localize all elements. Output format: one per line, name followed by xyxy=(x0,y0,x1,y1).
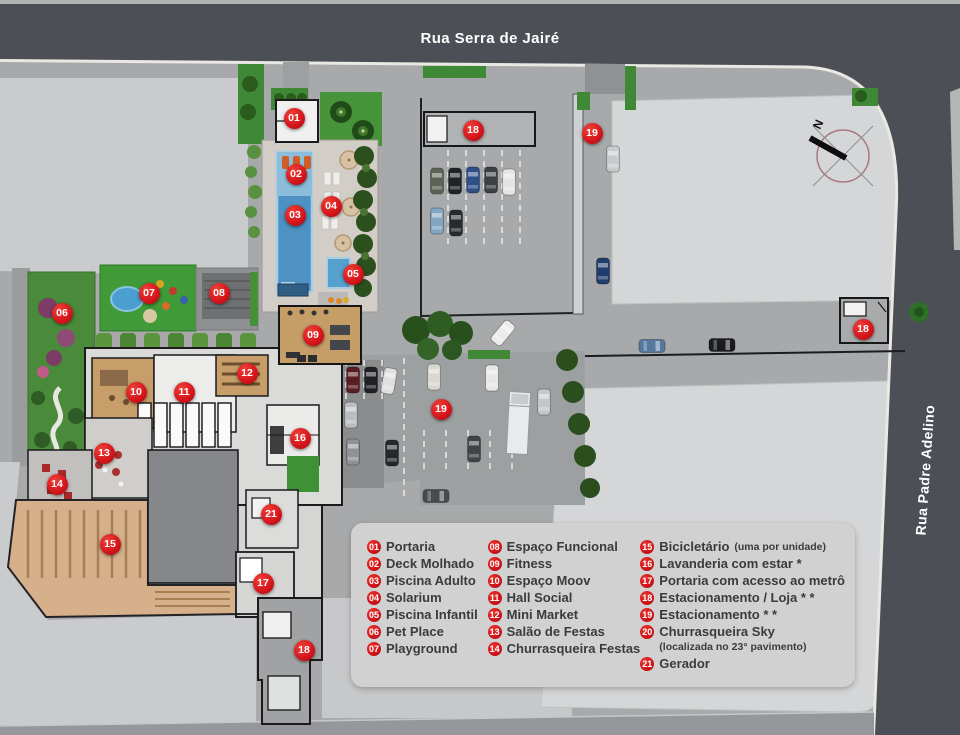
map-marker-09: 09 xyxy=(303,325,324,346)
sidewalk-bush xyxy=(909,302,929,322)
map-marker-21: 21 xyxy=(261,504,282,525)
car xyxy=(365,367,378,393)
map-marker-10: 10 xyxy=(126,382,147,403)
map-marker-07: 07 xyxy=(139,283,160,304)
legend-label-13: Salão de Festas xyxy=(507,624,605,639)
map-marker-19: 19 xyxy=(431,399,452,420)
map-marker-15: 15 xyxy=(100,534,121,555)
legend-label-06: Pet Place xyxy=(386,624,444,639)
legend-label-02: Deck Molhado xyxy=(386,556,474,571)
legend-item-04: 04Solarium xyxy=(367,589,488,606)
legend-label-08: Espaço Funcional xyxy=(507,539,618,554)
map-marker-03: 03 xyxy=(285,205,306,226)
car xyxy=(538,389,551,415)
legend-label-20: Churrasqueira Sky xyxy=(659,624,775,639)
legend-item-17: 17Portaria com acesso ao metrô xyxy=(640,572,845,589)
legend-item-13: 13Salão de Festas xyxy=(488,623,641,640)
legend-badge-14: 14 xyxy=(488,642,502,656)
legend-item-03: 03Piscina Adulto xyxy=(367,572,488,589)
car xyxy=(709,339,735,352)
car xyxy=(347,367,360,393)
legend-label-18: Estacionamento / Loja * * xyxy=(659,590,814,605)
car xyxy=(345,402,358,428)
map-marker-17: 17 xyxy=(253,573,274,594)
legend-label-07: Playground xyxy=(386,641,458,656)
legend-label-03: Piscina Adulto xyxy=(386,573,476,588)
map-marker-02: 02 xyxy=(286,164,307,185)
legend-badge-04: 04 xyxy=(367,591,381,605)
legend-badge-11: 11 xyxy=(488,591,502,605)
map-marker-14: 14 xyxy=(47,474,68,495)
legend-item-14: 14Churrasqueira Festas xyxy=(488,640,641,657)
legend-label-05: Piscina Infantil xyxy=(386,607,478,622)
car xyxy=(431,168,444,194)
legend-label-19: Estacionamento * * xyxy=(659,607,777,622)
site-plan: N Rua Serra de Jairé Rua Padre Adelino 0… xyxy=(0,0,960,735)
car xyxy=(467,167,480,193)
map-marker-06: 06 xyxy=(52,303,73,324)
legend-badge-20: 20 xyxy=(640,625,654,639)
legend-badge-13: 13 xyxy=(488,625,502,639)
legend-item-10: 10Espaço Moov xyxy=(488,572,641,589)
car xyxy=(597,258,610,284)
map-marker-01: 01 xyxy=(284,108,305,129)
legend-badge-02: 02 xyxy=(367,557,381,571)
delivery-truck xyxy=(506,392,530,455)
legend-badge-12: 12 xyxy=(488,608,502,622)
legend-label-14: Churrasqueira Festas xyxy=(507,641,641,656)
legend-label-15: Bicicletário xyxy=(659,539,729,554)
car xyxy=(468,436,481,462)
legend-badge-16: 16 xyxy=(640,557,654,571)
legend-label-21: Gerador xyxy=(659,656,710,671)
legend-badge-03: 03 xyxy=(367,574,381,588)
legend-badge-17: 17 xyxy=(640,574,654,588)
tower-core-roof xyxy=(148,450,238,583)
map-marker-19: 19 xyxy=(582,123,603,144)
legend-column-1: 01Portaria02Deck Molhado03Piscina Adulto… xyxy=(367,538,488,679)
legend-item-12: 12Mini Market xyxy=(488,606,641,623)
map-marker-18: 18 xyxy=(853,319,874,340)
legend-label-01: Portaria xyxy=(386,539,435,554)
legend-badge-07: 07 xyxy=(367,642,381,656)
car xyxy=(450,210,463,236)
legend-label-04: Solarium xyxy=(386,590,442,605)
legend-item-21: 21Gerador xyxy=(640,655,845,672)
legend-item-15: 15Bicicletário (uma por unidade) xyxy=(640,538,845,555)
pool-area-layer xyxy=(245,140,378,312)
legend-item-02: 02Deck Molhado xyxy=(367,555,488,572)
legend-item-07: 07Playground xyxy=(367,640,488,657)
car xyxy=(607,146,620,172)
map-marker-16: 16 xyxy=(290,428,311,449)
car xyxy=(347,439,360,465)
legend-item-08: 08Espaço Funcional xyxy=(488,538,641,555)
map-marker-18: 18 xyxy=(294,640,315,661)
car xyxy=(431,208,444,234)
legend-label-09: Fitness xyxy=(507,556,553,571)
legend-item-01: 01Portaria xyxy=(367,538,488,555)
map-marker-04: 04 xyxy=(321,196,342,217)
legend-item-20: 20Churrasqueira Sky xyxy=(640,623,845,640)
map-marker-13: 13 xyxy=(94,443,115,464)
legend-label-17: Portaria com acesso ao metrô xyxy=(659,573,845,588)
car xyxy=(486,365,499,391)
car xyxy=(428,364,441,390)
car xyxy=(449,168,462,194)
legend-badge-09: 09 xyxy=(488,557,502,571)
legend-item-11: 11Hall Social xyxy=(488,589,641,606)
legend-badge-19: 19 xyxy=(640,608,654,622)
map-marker-08: 08 xyxy=(209,283,230,304)
legend-badge-01: 01 xyxy=(367,540,381,554)
map-marker-12: 12 xyxy=(237,363,258,384)
legend-label-11: Hall Social xyxy=(507,590,573,605)
legend-item-05: 05Piscina Infantil xyxy=(367,606,488,623)
car xyxy=(423,490,449,503)
legend-badge-05: 05 xyxy=(367,608,381,622)
legend-note-below-20: (localizada no 23° pavimento) xyxy=(640,640,845,655)
legend-column-2: 08Espaço Funcional09Fitness10Espaço Moov… xyxy=(488,538,641,679)
legend-item-16: 16Lavanderia com estar * xyxy=(640,555,845,572)
legend-column-3: 15Bicicletário (uma por unidade)16Lavand… xyxy=(640,538,845,679)
legend-badge-08: 08 xyxy=(488,540,502,554)
legend-note-15: (uma por unidade) xyxy=(734,541,826,553)
car xyxy=(503,169,516,195)
street-label-top: Rua Serra de Jairé xyxy=(330,30,650,47)
map-marker-18: 18 xyxy=(463,120,484,141)
legend-label-12: Mini Market xyxy=(507,607,579,622)
legend-badge-21: 21 xyxy=(640,657,654,671)
legend-item-19: 19Estacionamento * * xyxy=(640,606,845,623)
legend-item-09: 09Fitness xyxy=(488,555,641,572)
map-marker-05: 05 xyxy=(343,264,364,285)
legend-box: 01Portaria02Deck Molhado03Piscina Adulto… xyxy=(351,523,855,687)
legend-item-18: 18Estacionamento / Loja * * xyxy=(640,589,845,606)
legend-item-06: 06Pet Place xyxy=(367,623,488,640)
legend-badge-06: 06 xyxy=(367,625,381,639)
legend-badge-10: 10 xyxy=(488,574,502,588)
car xyxy=(386,440,399,466)
car xyxy=(485,167,498,193)
legend-label-16: Lavanderia com estar * xyxy=(659,556,801,571)
car xyxy=(639,340,665,353)
legend-label-10: Espaço Moov xyxy=(507,573,591,588)
map-marker-11: 11 xyxy=(174,382,195,403)
legend-badge-15: 15 xyxy=(640,540,654,554)
legend-badge-18: 18 xyxy=(640,591,654,605)
